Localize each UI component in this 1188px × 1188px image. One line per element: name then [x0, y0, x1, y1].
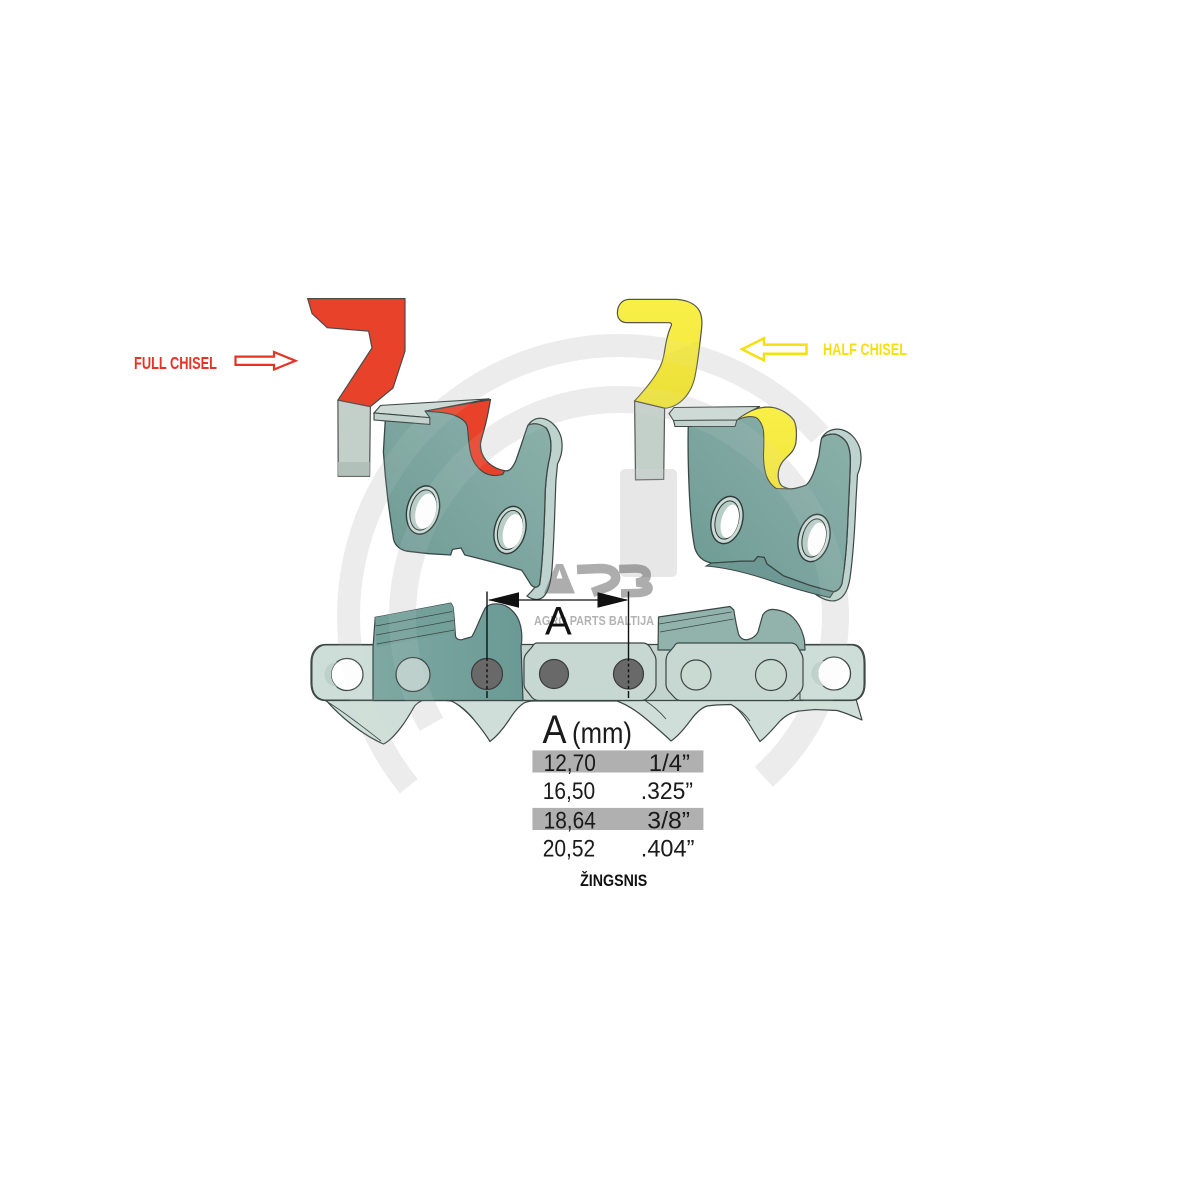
svg-text:HALF CHISEL: HALF CHISEL: [823, 340, 907, 359]
svg-text:A: A: [543, 708, 567, 752]
svg-text:.404”: .404”: [641, 836, 695, 863]
svg-text:.325”: .325”: [641, 778, 693, 805]
svg-text:ŽINGSNIS: ŽINGSNIS: [580, 871, 647, 890]
svg-text:A: A: [545, 600, 572, 644]
svg-text:(mm): (mm): [572, 717, 632, 750]
svg-text:FULL CHISEL: FULL CHISEL: [134, 353, 217, 373]
svg-text:18,64: 18,64: [544, 808, 596, 835]
svg-text:16,50: 16,50: [543, 778, 596, 805]
svg-text:3/8”: 3/8”: [647, 808, 690, 835]
svg-text:12,70: 12,70: [544, 750, 596, 777]
svg-text:1/4”: 1/4”: [649, 750, 690, 777]
svg-text:20,52: 20,52: [543, 836, 596, 863]
